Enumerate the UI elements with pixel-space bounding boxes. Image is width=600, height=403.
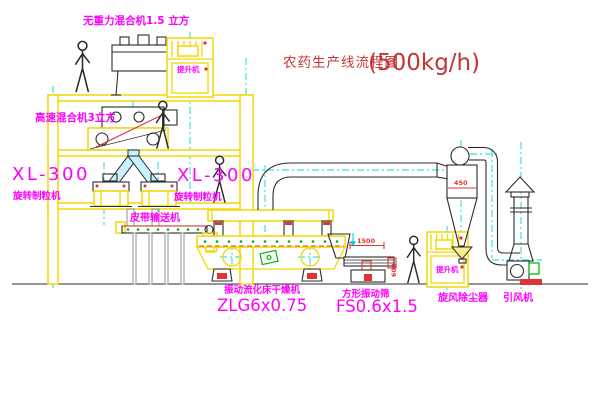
- screen-width-dim: 600: [390, 263, 398, 277]
- belt-conveyor-label: 皮带输送机: [129, 211, 180, 224]
- elevator-top-text: 提升机: [177, 64, 200, 74]
- dryer-model-label: ZLG6x0.75: [217, 296, 307, 315]
- cyclone-diameter-dim: 450: [454, 179, 468, 187]
- gravity-mixer-label: 无重力混合机1.5 立方: [82, 14, 190, 27]
- elevator-right-text: 提升机: [436, 264, 459, 274]
- cad-drawing-canvas: 提升机: [0, 0, 600, 403]
- person-figure: [76, 41, 90, 91]
- xl300-left-model: XL-300: [12, 164, 90, 185]
- dryer-name-label: 振动流化床干燥机: [224, 284, 301, 296]
- person-figure: [407, 236, 420, 282]
- process-flow-diagram: 提升机: [0, 0, 600, 403]
- bucket-elevator-top: 提升机: [167, 38, 213, 97]
- fan-label: 引风机: [503, 291, 533, 304]
- screen-length-dim: 1500: [357, 237, 376, 245]
- cyclone-separator: [447, 147, 520, 265]
- fluid-bed-dryer: [197, 210, 356, 281]
- vibrating-screen: [344, 242, 396, 282]
- drawing-capacity: (500kg/h): [368, 50, 480, 76]
- exhaust-stack: [506, 177, 534, 261]
- screen-model-label: FS0.6x1.5: [336, 297, 418, 316]
- xl300-left-name: 旋转制粒机: [12, 190, 61, 202]
- cyclone-label: 旋风除尘器: [437, 291, 489, 304]
- induced-draft-fan: [507, 261, 542, 285]
- high-speed-mixer-label: 高速混合机3立方: [35, 111, 116, 124]
- xl300-mid-model: XL-300: [177, 165, 255, 186]
- xl300-mid-name: 旋转制粒机: [173, 191, 222, 203]
